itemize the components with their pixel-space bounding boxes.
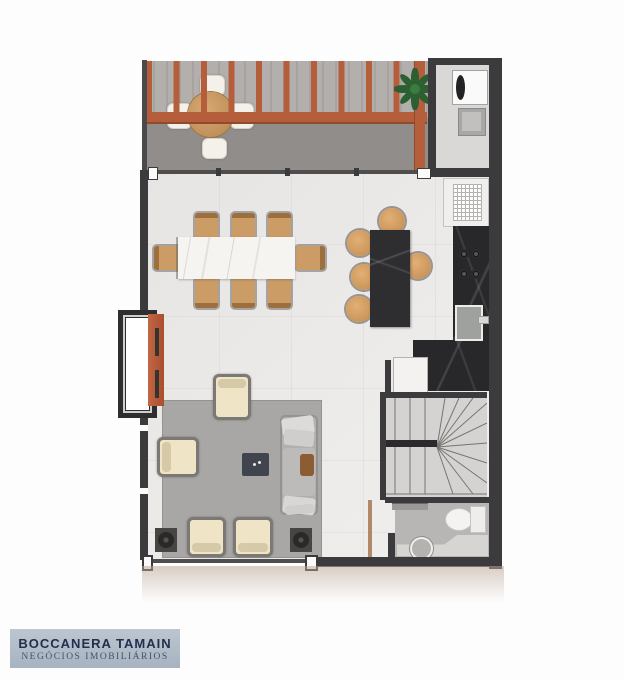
wall-deck-left bbox=[142, 60, 147, 172]
sofa-cushion-brown bbox=[300, 454, 314, 476]
brand-tagline: NEGÓCIOS IMOBILIÁRIOS bbox=[21, 652, 168, 662]
wall-stair-top bbox=[383, 392, 487, 398]
kitchen-faucet bbox=[478, 316, 489, 324]
toilet-icon bbox=[445, 508, 473, 531]
exterior-shadow bbox=[142, 566, 504, 602]
dining-chair bbox=[232, 278, 255, 308]
bathroom-shelf bbox=[392, 503, 428, 510]
wall-right bbox=[489, 58, 502, 569]
deck-door-mullion-3 bbox=[354, 168, 359, 176]
side-table-right bbox=[290, 528, 312, 552]
grill-counter bbox=[443, 178, 489, 227]
deck-door-post-left bbox=[148, 167, 158, 180]
side-table-left bbox=[155, 528, 177, 552]
staircase-treads bbox=[386, 398, 487, 497]
toilet-tank bbox=[470, 506, 486, 533]
refrigerator bbox=[393, 357, 428, 393]
dining-chair bbox=[268, 278, 291, 308]
brand-name: BOCCANERA TAMAIN bbox=[18, 636, 171, 651]
wall-left-upper bbox=[140, 170, 148, 314]
cooktop-burner-2 bbox=[471, 249, 481, 259]
wall-kitchen-stub bbox=[385, 360, 391, 392]
cooktop-burner-4 bbox=[471, 269, 481, 279]
kitchen-island bbox=[370, 230, 410, 327]
coffee-table bbox=[242, 453, 269, 476]
deck-chair-south bbox=[202, 138, 227, 159]
wall-bathroom-top bbox=[385, 497, 490, 503]
armchair-bottom-1 bbox=[187, 517, 226, 557]
wall-bathroom-left-stub bbox=[388, 533, 395, 560]
armchair-left bbox=[157, 437, 199, 477]
dining-chair bbox=[195, 278, 218, 308]
sofa-pillow bbox=[283, 429, 314, 448]
dining-chair bbox=[296, 246, 325, 270]
window-tick bbox=[140, 425, 148, 431]
dining-table bbox=[178, 237, 295, 279]
bottom-sliding-glass-door bbox=[153, 559, 305, 563]
bathroom-door-leaf bbox=[368, 500, 372, 562]
service-appliance-top bbox=[462, 112, 481, 131]
washing-machine bbox=[452, 70, 488, 105]
sofa bbox=[280, 415, 318, 515]
service-appliance bbox=[458, 108, 486, 136]
pergola-slats bbox=[146, 61, 424, 118]
brand-logo: BOCCANERA TAMAIN NEGÓCIOS IMOBILIÁRIOS bbox=[10, 629, 180, 668]
washer-drum bbox=[456, 75, 465, 100]
floor-plan bbox=[140, 58, 504, 600]
wall-stair-left bbox=[380, 392, 386, 500]
cooktop-burner-1 bbox=[459, 249, 469, 259]
deck-door-mullion-2 bbox=[285, 168, 290, 176]
service-door-frame bbox=[417, 168, 431, 179]
wood-sideboard bbox=[148, 314, 164, 406]
cooktop-burner-3 bbox=[459, 269, 469, 279]
sideboard-handle bbox=[155, 328, 159, 356]
armchair-top bbox=[213, 374, 251, 420]
grill-grate bbox=[453, 184, 482, 221]
pergola-beam bbox=[143, 112, 427, 124]
coffee-table-decor bbox=[258, 461, 261, 464]
island-stool bbox=[346, 296, 372, 322]
window-tick bbox=[140, 488, 148, 494]
deck-door-mullion-1 bbox=[216, 168, 221, 176]
armchair-bottom-2 bbox=[233, 517, 273, 557]
sideboard-handle bbox=[155, 370, 159, 398]
coffee-table-decor bbox=[253, 463, 256, 466]
wall-service-left bbox=[428, 58, 436, 177]
stair-handrail bbox=[383, 440, 437, 447]
